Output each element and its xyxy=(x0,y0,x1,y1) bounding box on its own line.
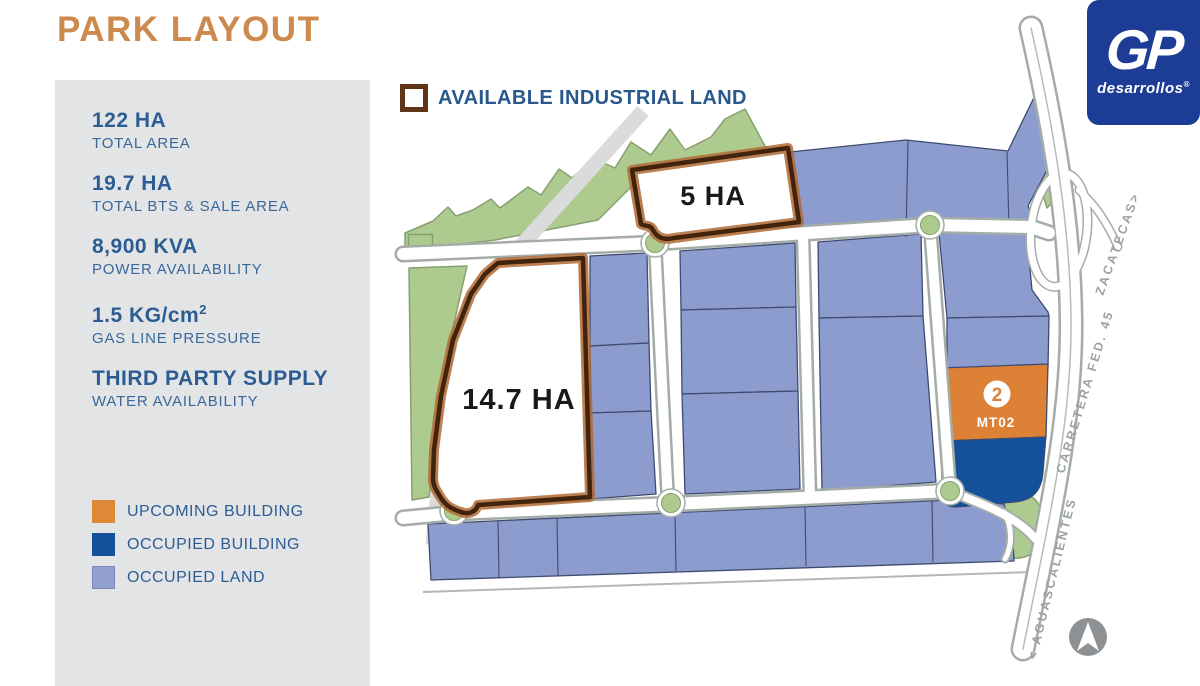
stat-water: THIRD PARTY SUPPLY WATER AVAILABILITY xyxy=(92,366,350,412)
stat-total-area: 122 HA TOTAL AREA xyxy=(92,108,350,154)
available-land-header: AVAILABLE INDUSTRIAL LAND xyxy=(400,84,747,112)
registered-mark: ® xyxy=(1183,80,1189,89)
available-land-label: AVAILABLE INDUSTRIAL LAND xyxy=(438,87,747,110)
map-legend: UPCOMING BUILDING OCCUPIED BUILDING OCCU… xyxy=(92,500,304,599)
stat-value-sup: 2 xyxy=(199,302,207,317)
legend-label: UPCOMING BUILDING xyxy=(127,503,304,521)
legend-item-occupied-building: OCCUPIED BUILDING xyxy=(92,533,304,556)
stat-value: 19.7 HA xyxy=(92,172,173,195)
stat-bts-sale-area: 19.7 HA TOTAL BTS & SALE AREA xyxy=(92,171,350,217)
stat-label: POWER AVAILABILITY xyxy=(92,260,350,280)
upcoming-building-swatch xyxy=(92,500,115,523)
gp-desarrollos-logo: GP desarrollos® xyxy=(1087,0,1200,125)
stat-value: 122 HA xyxy=(92,109,166,132)
stat-value: 8,900 KVA xyxy=(92,235,198,258)
sidebar: 122 HA TOTAL AREA 19.7 HA TOTAL BTS & SA… xyxy=(55,80,370,686)
legend-item-upcoming-building: UPCOMING BUILDING xyxy=(92,500,304,523)
logo-brand-text: GP xyxy=(1085,22,1200,78)
stat-label: TOTAL AREA xyxy=(92,134,350,154)
stat-label: TOTAL BTS & SALE AREA xyxy=(92,197,350,217)
page-title: PARK LAYOUT xyxy=(57,10,320,50)
north-compass-icon xyxy=(1069,618,1107,656)
badge-code: MT02 xyxy=(977,415,1016,430)
stat-gas-pressure: 1.5 KG/cm2 GAS LINE PRESSURE xyxy=(92,297,350,349)
available-land-swatch xyxy=(400,84,428,112)
stat-value: 1.5 KG/cm xyxy=(92,304,199,327)
plot-label-5ha: 5 HA xyxy=(680,181,746,211)
stat-power: 8,900 KVA POWER AVAILABILITY xyxy=(92,234,350,280)
plot-label-14-7ha: 14.7 HA xyxy=(462,384,575,416)
legend-item-occupied-land: OCCUPIED LAND xyxy=(92,566,304,589)
occupied-building-swatch xyxy=(92,533,115,556)
occupied-land-swatch xyxy=(92,566,115,589)
legend-label: OCCUPIED BUILDING xyxy=(127,536,300,554)
legend-label: OCCUPIED LAND xyxy=(127,569,265,587)
stat-label: WATER AVAILABILITY xyxy=(92,392,350,412)
logo-subtitle: desarrollos xyxy=(1097,80,1183,97)
stat-value: THIRD PARTY SUPPLY xyxy=(92,367,328,390)
badge-number: 2 xyxy=(992,385,1003,406)
stat-label: GAS LINE PRESSURE xyxy=(92,329,350,349)
road-label-zacatecas: ZACATECAS> xyxy=(1093,190,1143,297)
